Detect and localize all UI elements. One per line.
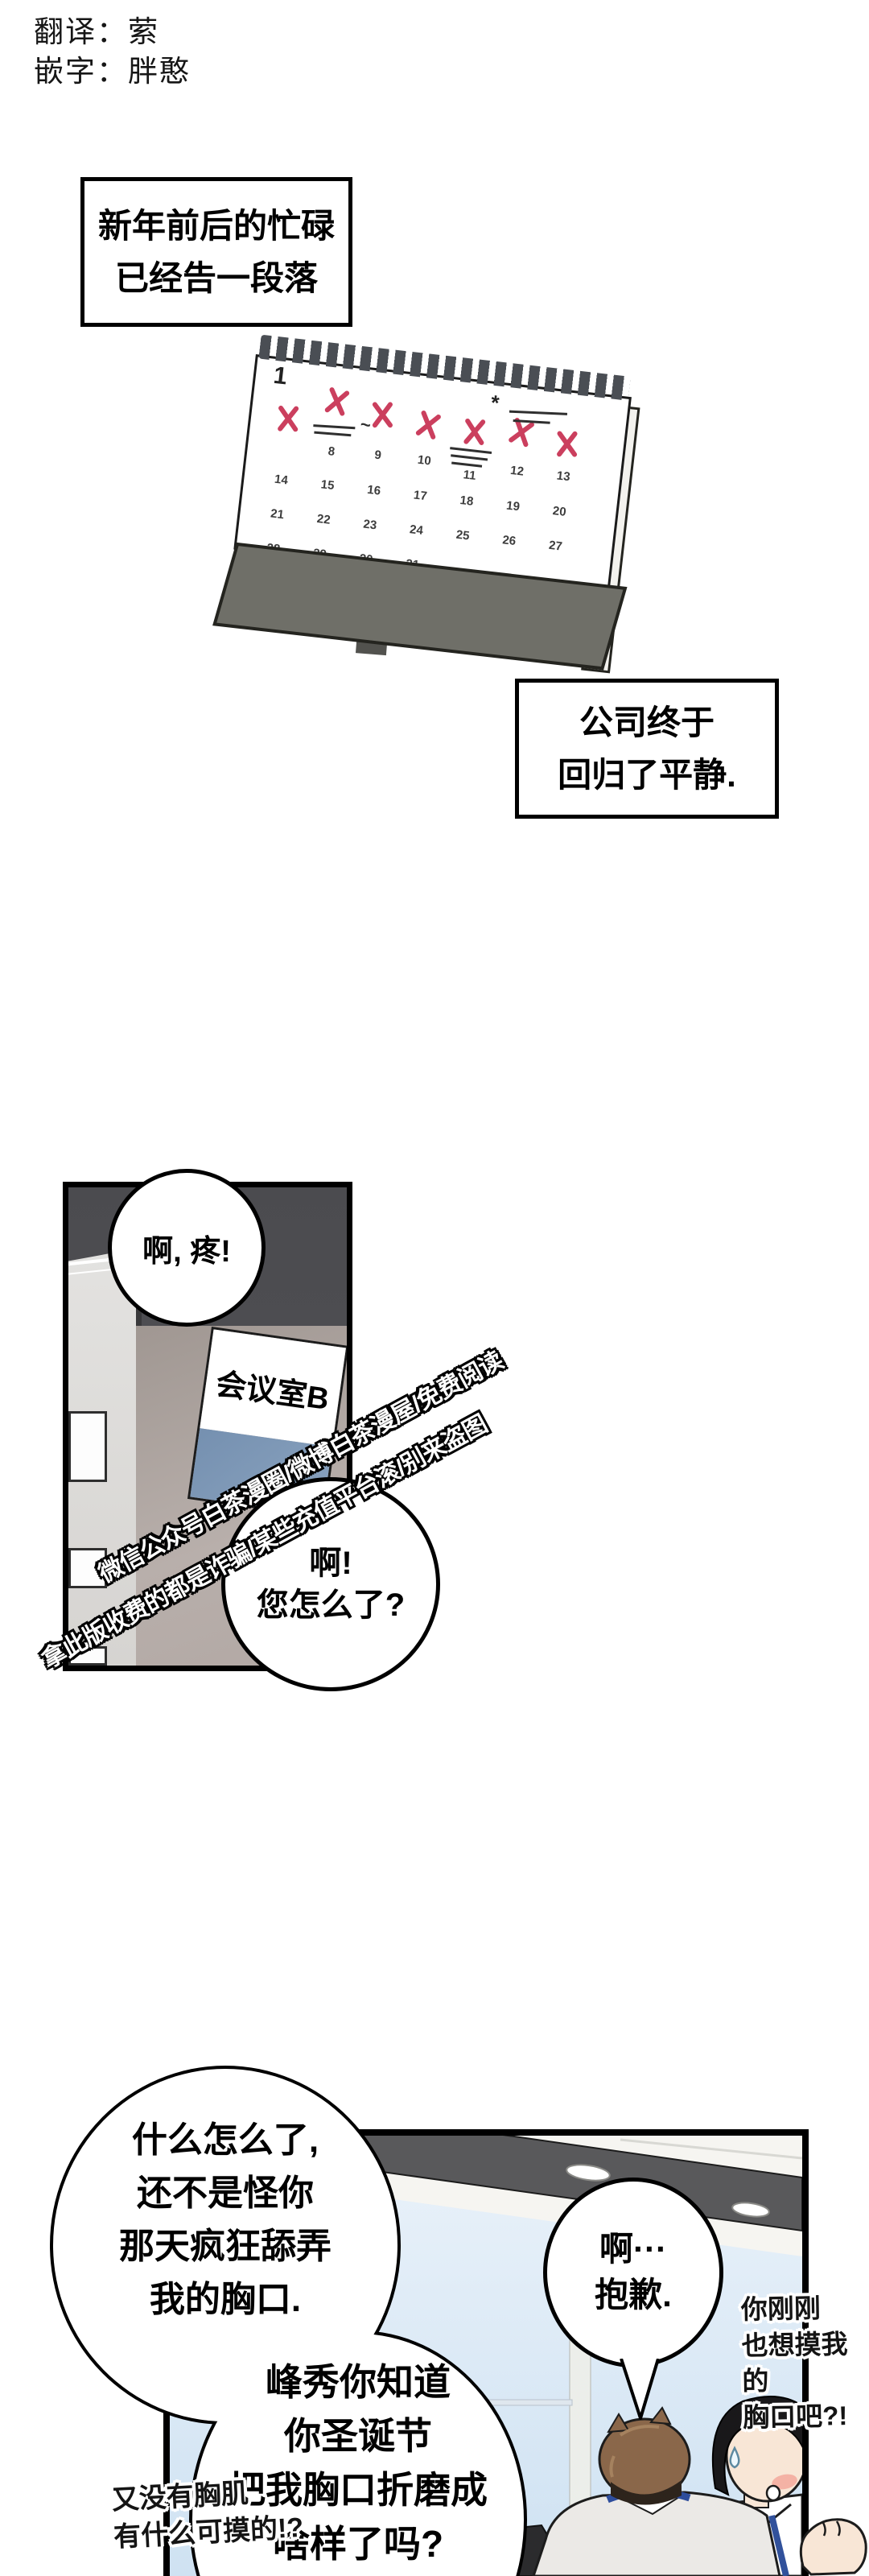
calendar-x-mark	[369, 400, 397, 430]
calendar-x-mark	[554, 429, 581, 458]
calendar-date: 18	[447, 492, 487, 510]
caption-line: 公司终于	[579, 696, 715, 749]
fist	[795, 2510, 869, 2576]
handwritten-note-right: 你刚刚 也想摸我的 胸口吧?!	[740, 2290, 869, 2436]
speech-bubble-pain: 啊, 疼!	[108, 1169, 266, 1327]
note-line: 也想摸我的	[741, 2326, 869, 2400]
bubble-line: 还不是怪你	[50, 2167, 401, 2220]
desk-calendar: 1 ~ * 8 9 10 11 12 13	[220, 341, 640, 713]
calendar-date: 17	[401, 487, 441, 505]
caption-line: 新年前后的忙碌	[98, 200, 335, 252]
calendar-date: 27	[536, 537, 576, 555]
caption-box-1: 新年前后的忙碌 已经告一段落	[80, 177, 352, 327]
calendar-x-mark	[412, 407, 445, 442]
calendar-date: 12	[497, 462, 537, 480]
calendar-date: 26	[489, 532, 529, 550]
caption-box-2: 公司终于 回归了平静.	[515, 679, 779, 819]
bubble-line: 我的胸口.	[50, 2273, 401, 2326]
typesetter-credit: 嵌字：胖憨	[34, 52, 191, 92]
calendar-date: 13	[543, 468, 583, 485]
note-line: 胸口吧?!	[743, 2397, 869, 2435]
calendar-month: 1	[272, 362, 288, 391]
bubble-text-complain-1: 什么怎么了, 还不是怪你 那天疯狂舔弄 我的胸口.	[50, 2114, 401, 2326]
bubble-tail	[616, 2359, 668, 2425]
handwritten-note-left: 又没有胸肌 有什么可摸的!?	[111, 2473, 305, 2557]
calendar-scribble	[314, 431, 351, 437]
bubble-line: 什么怎么了,	[50, 2114, 401, 2167]
calendar-date: 22	[303, 510, 344, 528]
calendar-date: 15	[307, 477, 348, 494]
bubble-line: 抱歉.	[595, 2273, 672, 2318]
calendar-note-asterisk: *	[489, 390, 500, 416]
translator-credit: 翻译：萦	[34, 13, 191, 52]
credits: 翻译：萦 嵌字：胖憨	[34, 13, 191, 92]
calendar-scribble	[313, 424, 355, 429]
calendar-x-mark	[274, 404, 302, 433]
calendar-date: 19	[493, 497, 533, 515]
calendar-date: 23	[350, 516, 390, 534]
calendar-date: 8	[311, 443, 352, 460]
bubble-text: 啊, 疼!	[142, 1226, 231, 1270]
calendar-wave-mark: ~	[359, 414, 372, 436]
calendar-date: 16	[354, 481, 394, 499]
calendar-x-mark	[321, 385, 353, 419]
bubble-line: 那天疯狂舔弄	[50, 2220, 401, 2273]
bubble-text: 啊!	[309, 1542, 352, 1584]
note-line: 你刚刚	[740, 2290, 868, 2328]
speech-bubble-sorry: 啊··· 抱歉.	[543, 2178, 723, 2368]
calendar-date: 10	[405, 452, 445, 469]
calendar-date: 20	[539, 502, 579, 520]
calendar-date: 14	[262, 471, 302, 489]
open-mouth	[767, 2486, 780, 2500]
bubble-line: 峰秀你知道	[189, 2355, 527, 2409]
wall-plate	[68, 1411, 107, 1482]
calendar-date: 21	[257, 506, 298, 523]
bubble-text: 您怎么了?	[257, 1584, 405, 1626]
calendar-date: 25	[443, 526, 483, 544]
bubble-line: 你圣诞节	[189, 2409, 527, 2463]
calendar-note-line	[509, 411, 567, 415]
comic-page: 翻译：萦 嵌字：胖憨 新年前后的忙碌 已经告一段落 1 ~ *	[0, 0, 869, 2576]
calendar-date: 11	[450, 466, 490, 484]
caption-line: 已经告一段落	[115, 252, 318, 304]
calendar-date: 9	[358, 446, 398, 464]
calendar-x-mark	[460, 417, 489, 447]
calendar-date: 24	[397, 521, 437, 539]
calendar-scribble	[450, 447, 492, 454]
calendar-scribble	[451, 454, 488, 460]
caption-line: 回归了平静.	[558, 749, 736, 801]
bubble-line: 啊···	[599, 2227, 667, 2273]
